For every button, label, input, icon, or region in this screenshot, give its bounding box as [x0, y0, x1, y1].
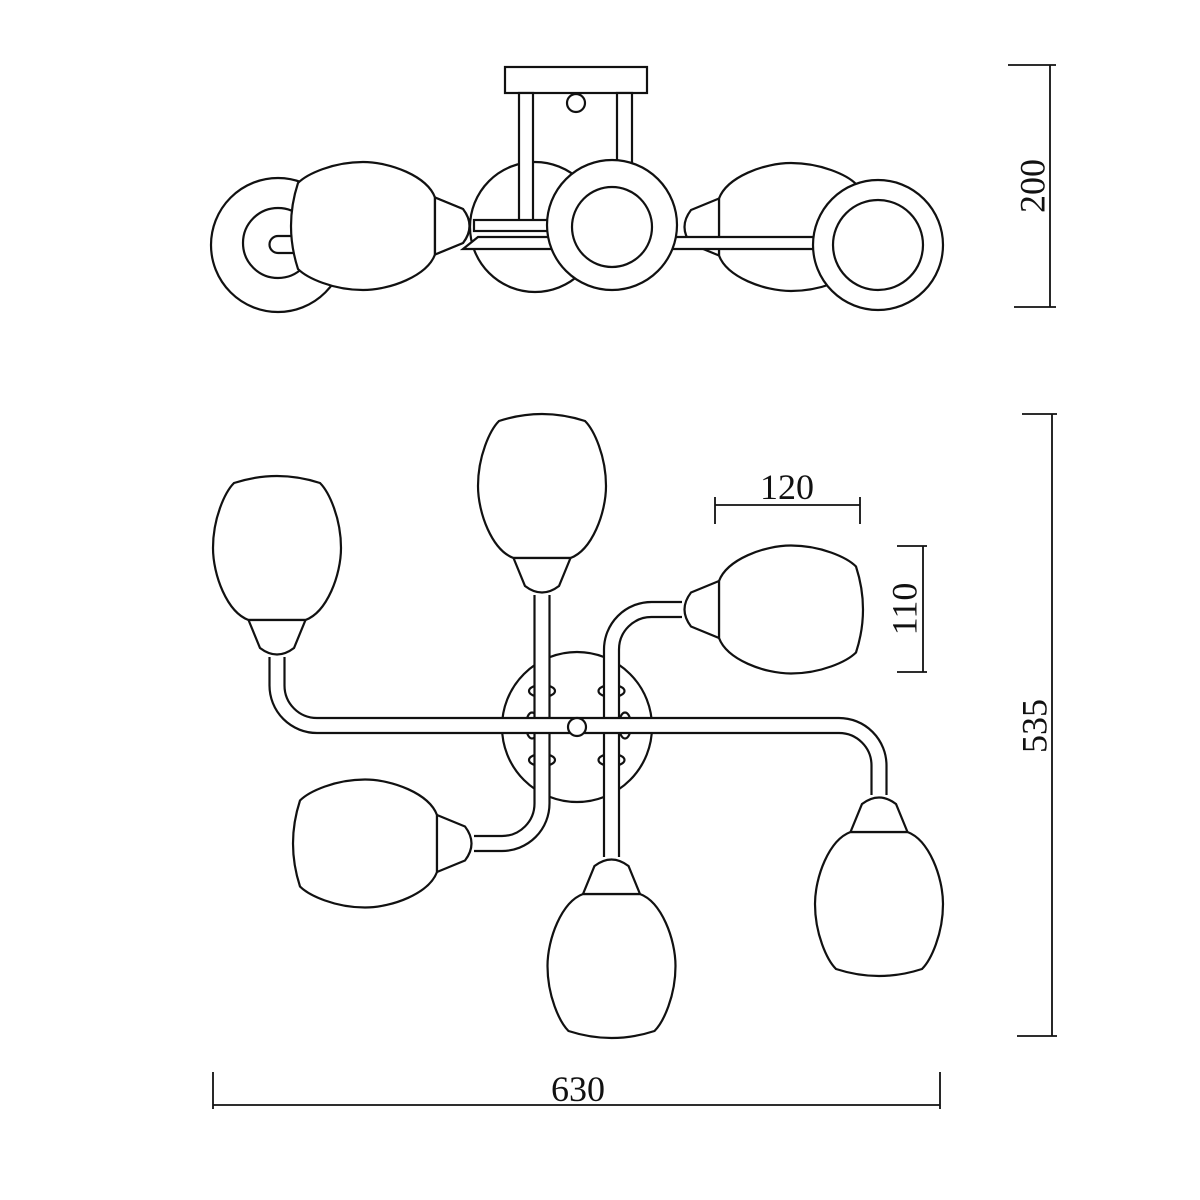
plan-shade-right-top [685, 546, 864, 674]
technical-drawing-page: 200 535 630 120 110 [0, 0, 1200, 1200]
side-right-shade-inner-rim [833, 200, 923, 290]
dimension-side-height: 200 [1008, 65, 1056, 307]
plan-shade-bottom-right [815, 798, 943, 977]
canopy-center-hole [568, 718, 586, 736]
stem-rod-left [519, 93, 533, 230]
plan-view [213, 414, 943, 1038]
plan-shade-left-bottom [293, 780, 472, 908]
dimension-shade-height: 110 [884, 546, 927, 672]
dimension-label-535: 535 [1014, 699, 1054, 753]
dimension-plan-height: 535 [1014, 414, 1057, 1036]
dimension-label-120: 120 [760, 467, 814, 507]
side-center-shade-inner-rim [572, 187, 652, 267]
ceiling-plate [505, 67, 647, 93]
dimension-label-110: 110 [884, 583, 924, 636]
ceiling-plate-screw [567, 94, 585, 112]
dimension-plan-width: 630 [213, 1069, 940, 1109]
dimension-label-630: 630 [551, 1069, 605, 1109]
side-elevation-view [211, 67, 943, 312]
dimension-shade-width: 120 [715, 467, 860, 524]
plan-shade-top-center [478, 414, 606, 593]
side-left-center-shade-neck [435, 198, 470, 255]
plan-shade-left-top [213, 476, 341, 655]
dimension-label-200: 200 [1012, 159, 1052, 213]
plan-shade-bottom-center [548, 860, 676, 1039]
lamp-technical-drawing: 200 535 630 120 110 [0, 0, 1200, 1200]
